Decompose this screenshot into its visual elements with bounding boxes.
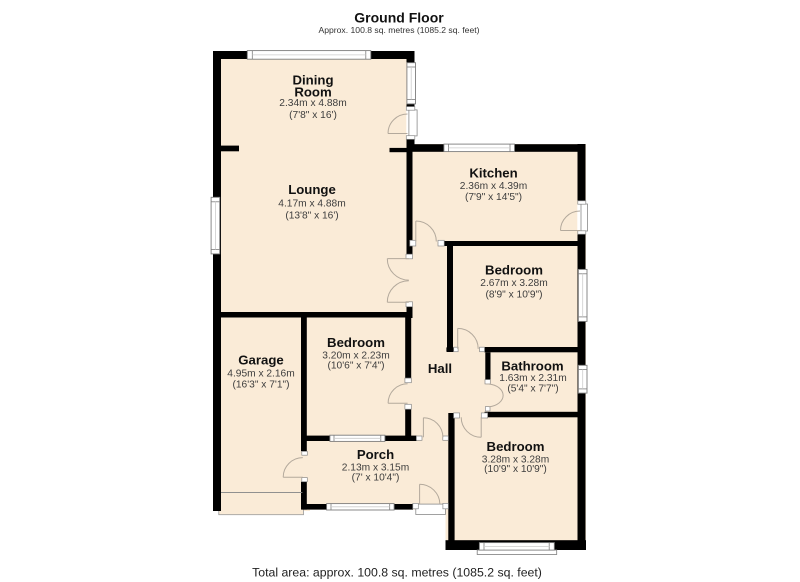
svg-text:4.95m x 2.16m: 4.95m x 2.16m (227, 369, 294, 380)
svg-text:Bedroom: Bedroom (487, 439, 545, 454)
svg-text:Bedroom: Bedroom (327, 335, 385, 350)
svg-text:1.63m x 2.31m: 1.63m x 2.31m (499, 373, 566, 384)
svg-text:(10'9" x 10'9"): (10'9" x 10'9") (484, 464, 547, 475)
svg-text:2.36m x 4.39m: 2.36m x 4.39m (460, 181, 527, 192)
svg-text:(10'6" x 7'4"): (10'6" x 7'4") (328, 361, 385, 372)
svg-text:Bedroom: Bedroom (485, 263, 543, 278)
svg-text:(7'8" x 16'): (7'8" x 16') (289, 110, 337, 121)
svg-text:Total area: approx. 100.8 sq.: Total area: approx. 100.8 sq. metres (10… (252, 565, 542, 579)
svg-text:(7'9" x 14'5"): (7'9" x 14'5") (465, 192, 522, 203)
svg-text:Garage: Garage (238, 353, 283, 368)
svg-text:4.17m x 4.88m: 4.17m x 4.88m (278, 199, 345, 210)
svg-text:Porch: Porch (357, 447, 394, 462)
svg-text:2.67m x 3.28m: 2.67m x 3.28m (480, 278, 547, 289)
svg-text:Approx. 100.8 sq. metres (1085: Approx. 100.8 sq. metres (1085.2 sq. fee… (319, 25, 480, 35)
svg-text:(5'4" x 7'7"): (5'4" x 7'7") (507, 383, 558, 394)
svg-text:Ground Floor: Ground Floor (354, 10, 444, 26)
svg-text:2.34m x 4.88m: 2.34m x 4.88m (279, 98, 346, 109)
svg-text:(16'3" x 7'1"): (16'3" x 7'1") (233, 380, 290, 391)
svg-text:(7' x 10'4"): (7' x 10'4") (352, 473, 400, 484)
svg-text:Bathroom: Bathroom (501, 359, 563, 374)
svg-text:Hall: Hall (428, 361, 452, 376)
svg-text:(13'8" x 16'): (13'8" x 16') (285, 211, 338, 222)
svg-text:(8'9" x 10'9"): (8'9" x 10'9") (486, 290, 543, 301)
svg-text:Kitchen: Kitchen (469, 166, 517, 181)
svg-text:Lounge: Lounge (288, 182, 336, 197)
